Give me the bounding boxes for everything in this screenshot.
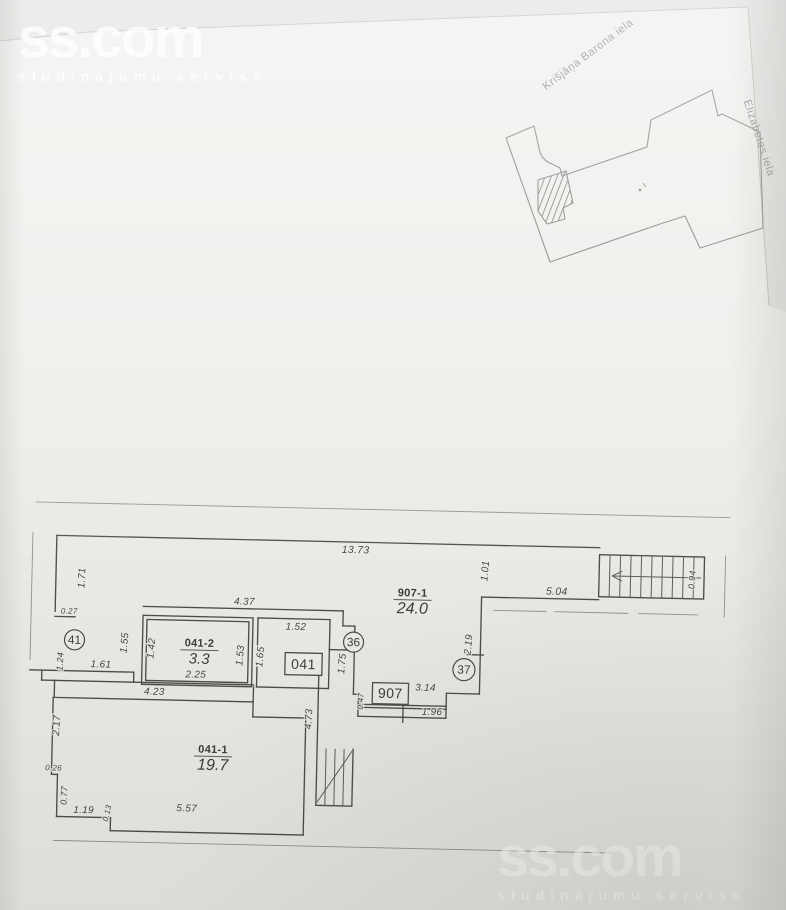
hatch-line [488,164,514,232]
wall [446,693,479,694]
floorplan-drawing: Krišjāņa Barona iela Elizabetes iela 13.… [0,0,786,910]
wall [55,535,57,611]
stairs [317,548,705,814]
dimension-label: 1.01 [479,560,492,582]
dimension-label: 1.52 [285,622,306,633]
dimension-label: 0.77 [58,785,69,805]
wall [482,597,599,600]
hatch-line [500,164,526,232]
circle-ref-label: 36 [347,635,361,649]
wall [316,654,319,805]
wall [257,618,258,645]
dimension-label: 13.73 [342,544,370,557]
dimension-label: 1.71 [76,567,88,588]
dimension-label: 0.13 [101,804,114,823]
dimension-label: 0.26 [45,763,62,772]
dimension-labels: 13.731.710.271.241.611.551.421.531.651.5… [44,537,698,835]
dimension-label: 0.94 [686,570,697,589]
building-outline [506,90,763,262]
dimension-label: 1.53 [234,644,247,666]
dimension-label: 1.24 [54,652,65,671]
dimension-label: 3.14 [415,683,436,694]
room-area: 24.0 [396,600,429,618]
dimension-label: 0.47 [356,692,366,710]
ss-com-logo: ss.com [497,829,746,886]
box-ref-label: 041 [291,656,316,673]
stair-tread [325,749,326,806]
ss-com-tagline: sludinājumu serviss [18,69,267,83]
hatch-line [596,164,622,232]
dimension-label: 1.19 [73,805,94,816]
ss-com-logo: ss.com [18,10,267,67]
street-label-barona: Krišjāņa Barona iela [540,16,636,92]
dimension-label: 2.25 [184,669,206,680]
hatch-line [536,164,562,232]
location-tick [643,183,646,187]
hatch-line [518,164,544,232]
dimension-label: 1.55 [119,632,132,654]
wall [253,717,306,718]
dimension-label: 1.75 [336,653,349,675]
wall [57,535,600,547]
site-plan: Krišjāņa Barona iela Elizabetes iela [482,16,777,262]
dimension-label: 1.61 [90,659,111,670]
circle-ref-label: 37 [457,663,471,677]
room-area: 19.7 [197,757,230,775]
floor-plan: 13.731.710.271.241.611.551.421.531.651.5… [26,502,730,856]
hatch-line [512,164,538,232]
hatch-line [482,164,508,232]
watermark-bottom-right: ss.com sludinājumu serviss [497,829,746,902]
room-code: 041-1 [198,744,228,757]
dimension-label: 1.65 [254,646,267,668]
dimension-label: 2.17 [51,715,63,737]
dimension-label: 0.27 [61,606,78,615]
dimension-label: 5.57 [176,803,197,814]
dimension-label: 2.19 [462,634,475,657]
wall [303,718,306,835]
room-area: 3.3 [188,650,210,667]
wall [258,618,330,620]
dimension-label: 4.23 [144,686,165,697]
boundary-line [493,610,546,611]
stair-tread [343,749,344,806]
boundary-line [30,532,33,660]
hatch-line [566,164,592,232]
hatch-lines [482,164,622,232]
wall [328,620,330,689]
boundary-line [554,612,628,614]
hatch-line [590,164,616,232]
wall [479,597,481,694]
wall [57,774,58,816]
dimension-label: 1.42 [145,637,158,659]
hatch-line [584,164,610,232]
wall [352,749,353,806]
hatch-line [572,164,598,232]
ss-com-tagline: sludinājumu serviss [497,888,746,902]
dimension-label: 5.04 [546,585,568,597]
stair-tread [609,555,610,597]
location-dot [639,189,642,192]
wall [446,693,447,718]
hatch-line [578,164,604,232]
dimension-label: 1.96 [422,707,443,718]
wall [256,687,328,689]
wall [110,831,303,835]
dimension-label: 4.37 [234,596,255,607]
wall [30,670,134,672]
boundary-line [36,502,731,518]
scanned-floorplan-sheet: Krišjāņa Barona iela Elizabetes iela 13.… [0,0,786,910]
boundary-line [638,614,698,615]
box-ref-label: 907 [378,685,403,702]
building-hatch [482,164,622,232]
room-code: 041-2 [185,637,215,650]
hatch-line [494,164,520,232]
dimension-label: 4.73 [303,708,315,729]
watermark-top-left: ss.com sludinājumu serviss [18,10,267,83]
room-code: 907-1 [398,587,428,600]
wall [54,697,253,702]
boundary-line [724,556,725,618]
walls [26,535,600,842]
circle-ref-label: 41 [68,633,82,647]
